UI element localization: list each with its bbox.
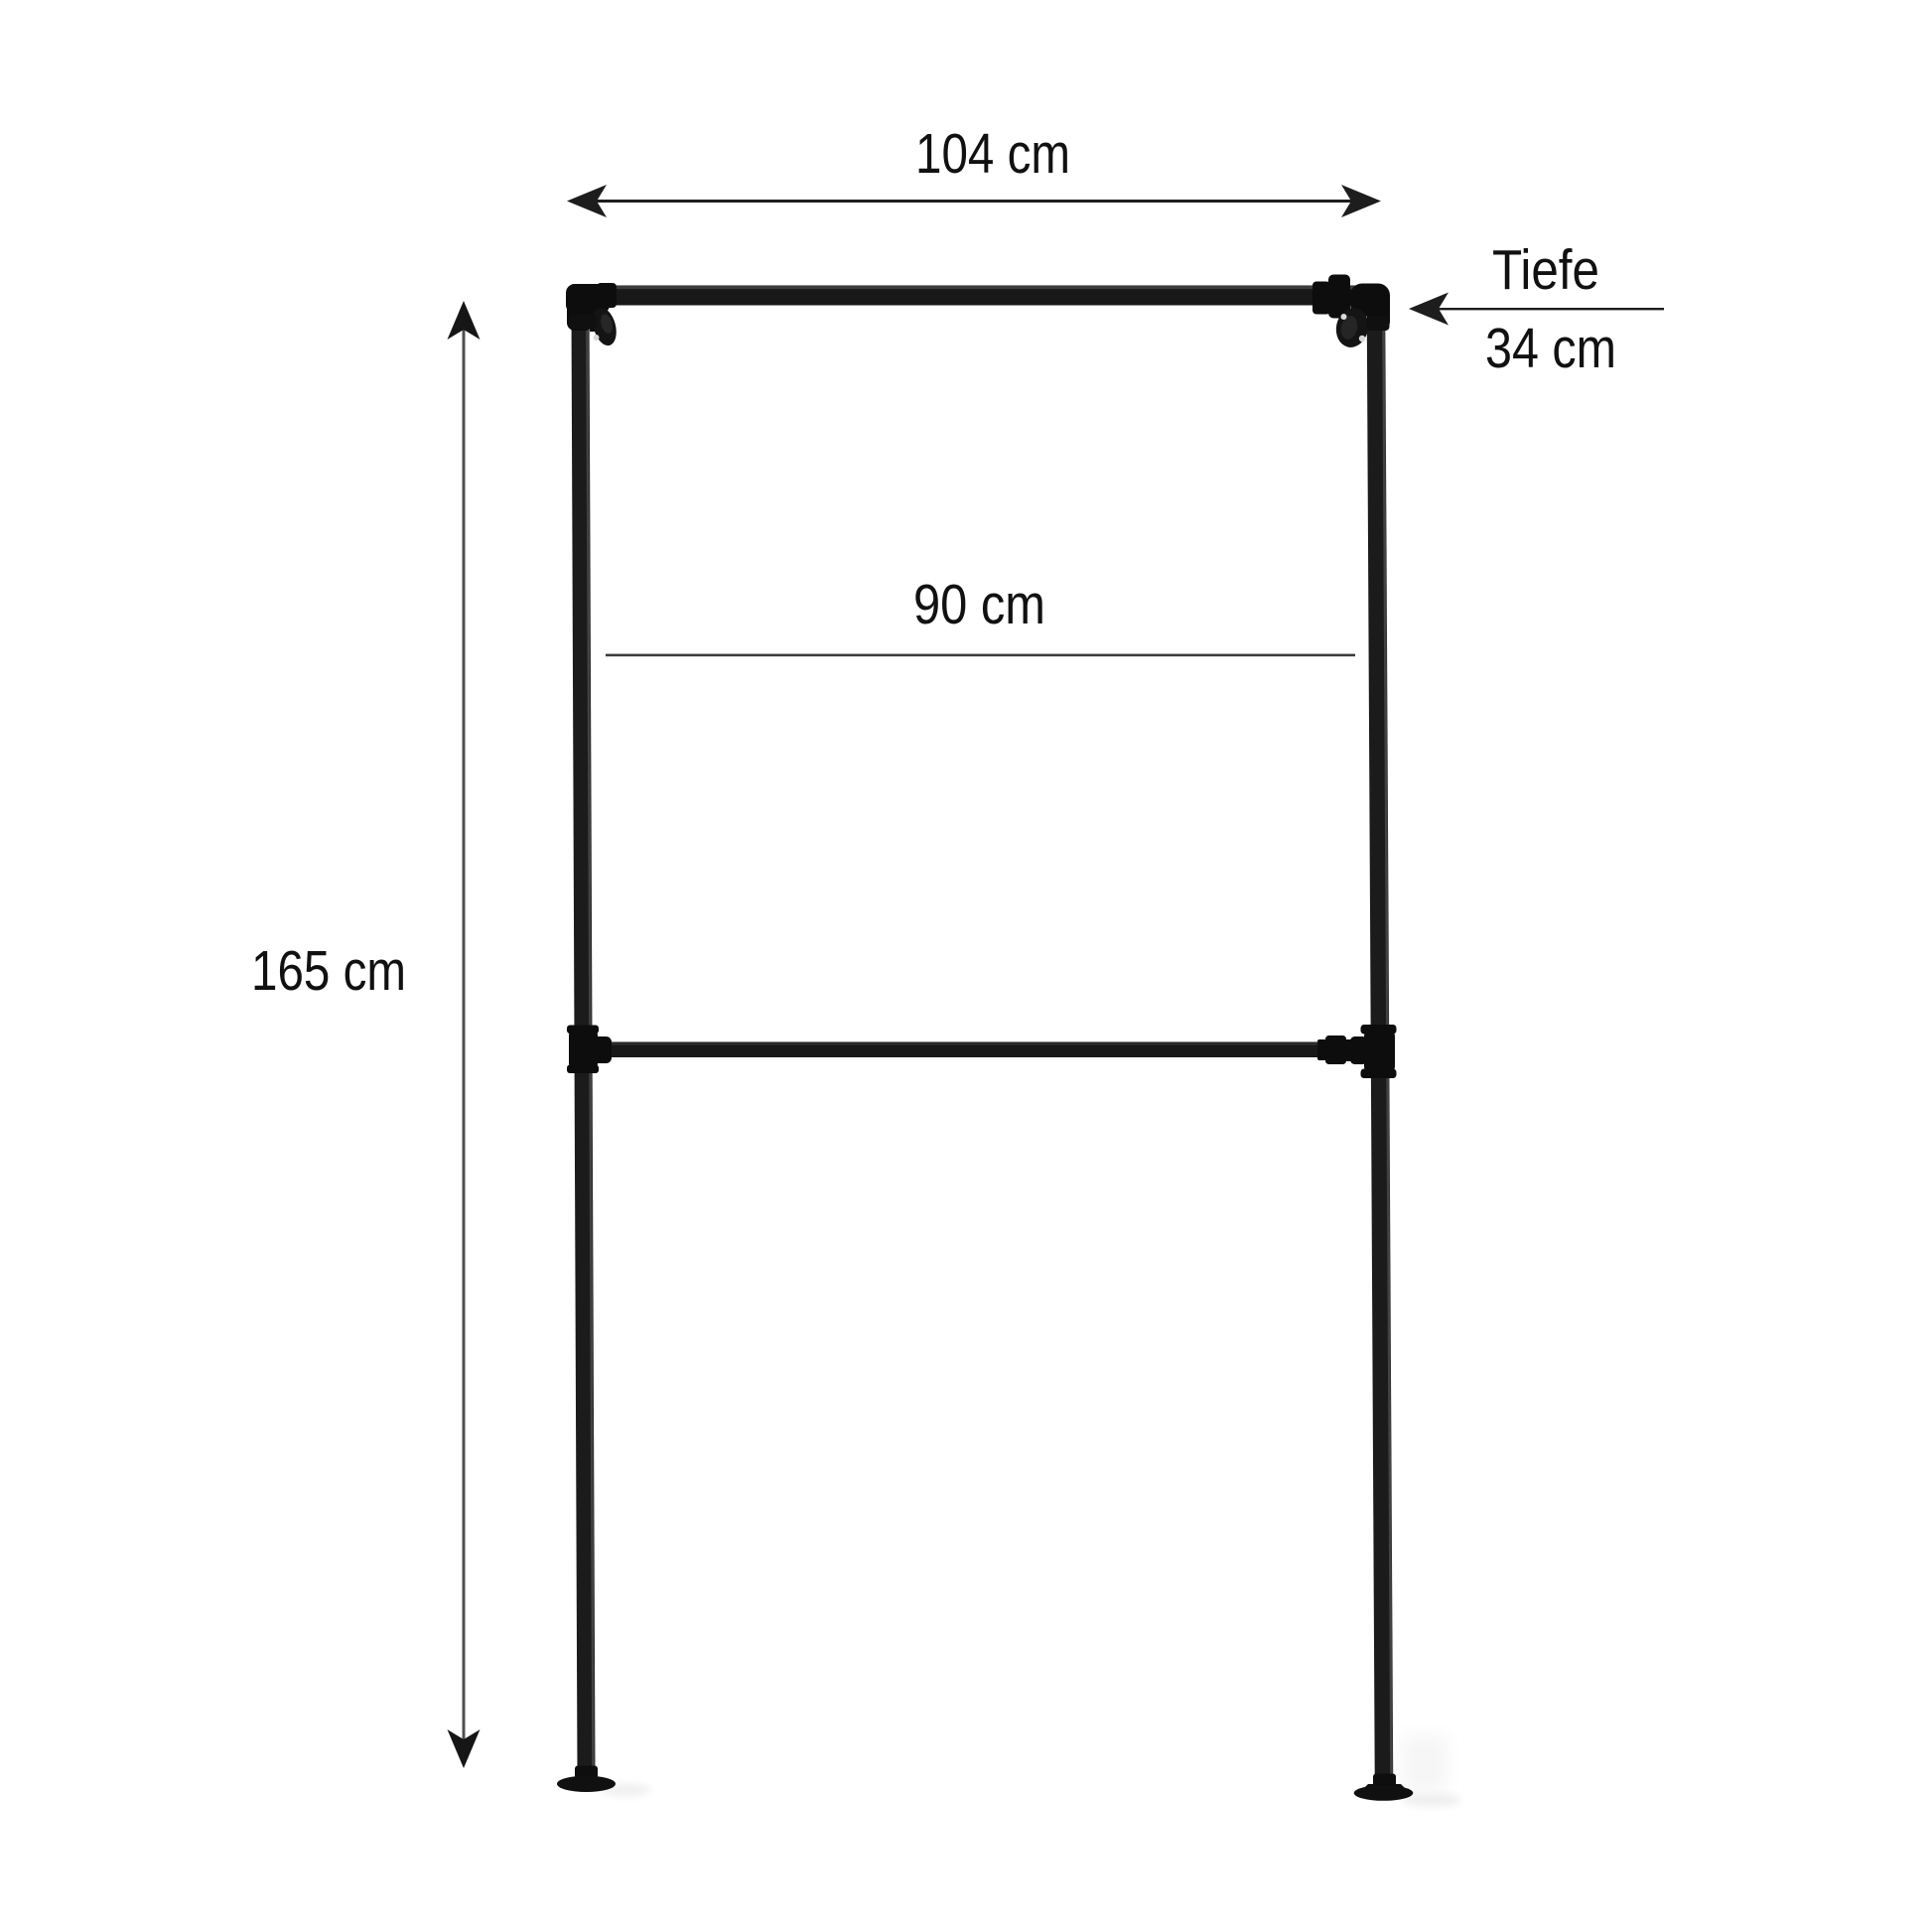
svg-text:104 cm: 104 cm bbox=[915, 122, 1070, 186]
svg-text:34 cm: 34 cm bbox=[1485, 317, 1616, 380]
svg-text:90 cm: 90 cm bbox=[913, 573, 1045, 636]
svg-text:Tiefe: Tiefe bbox=[1492, 238, 1599, 302]
svg-text:165 cm: 165 cm bbox=[251, 939, 406, 1003]
